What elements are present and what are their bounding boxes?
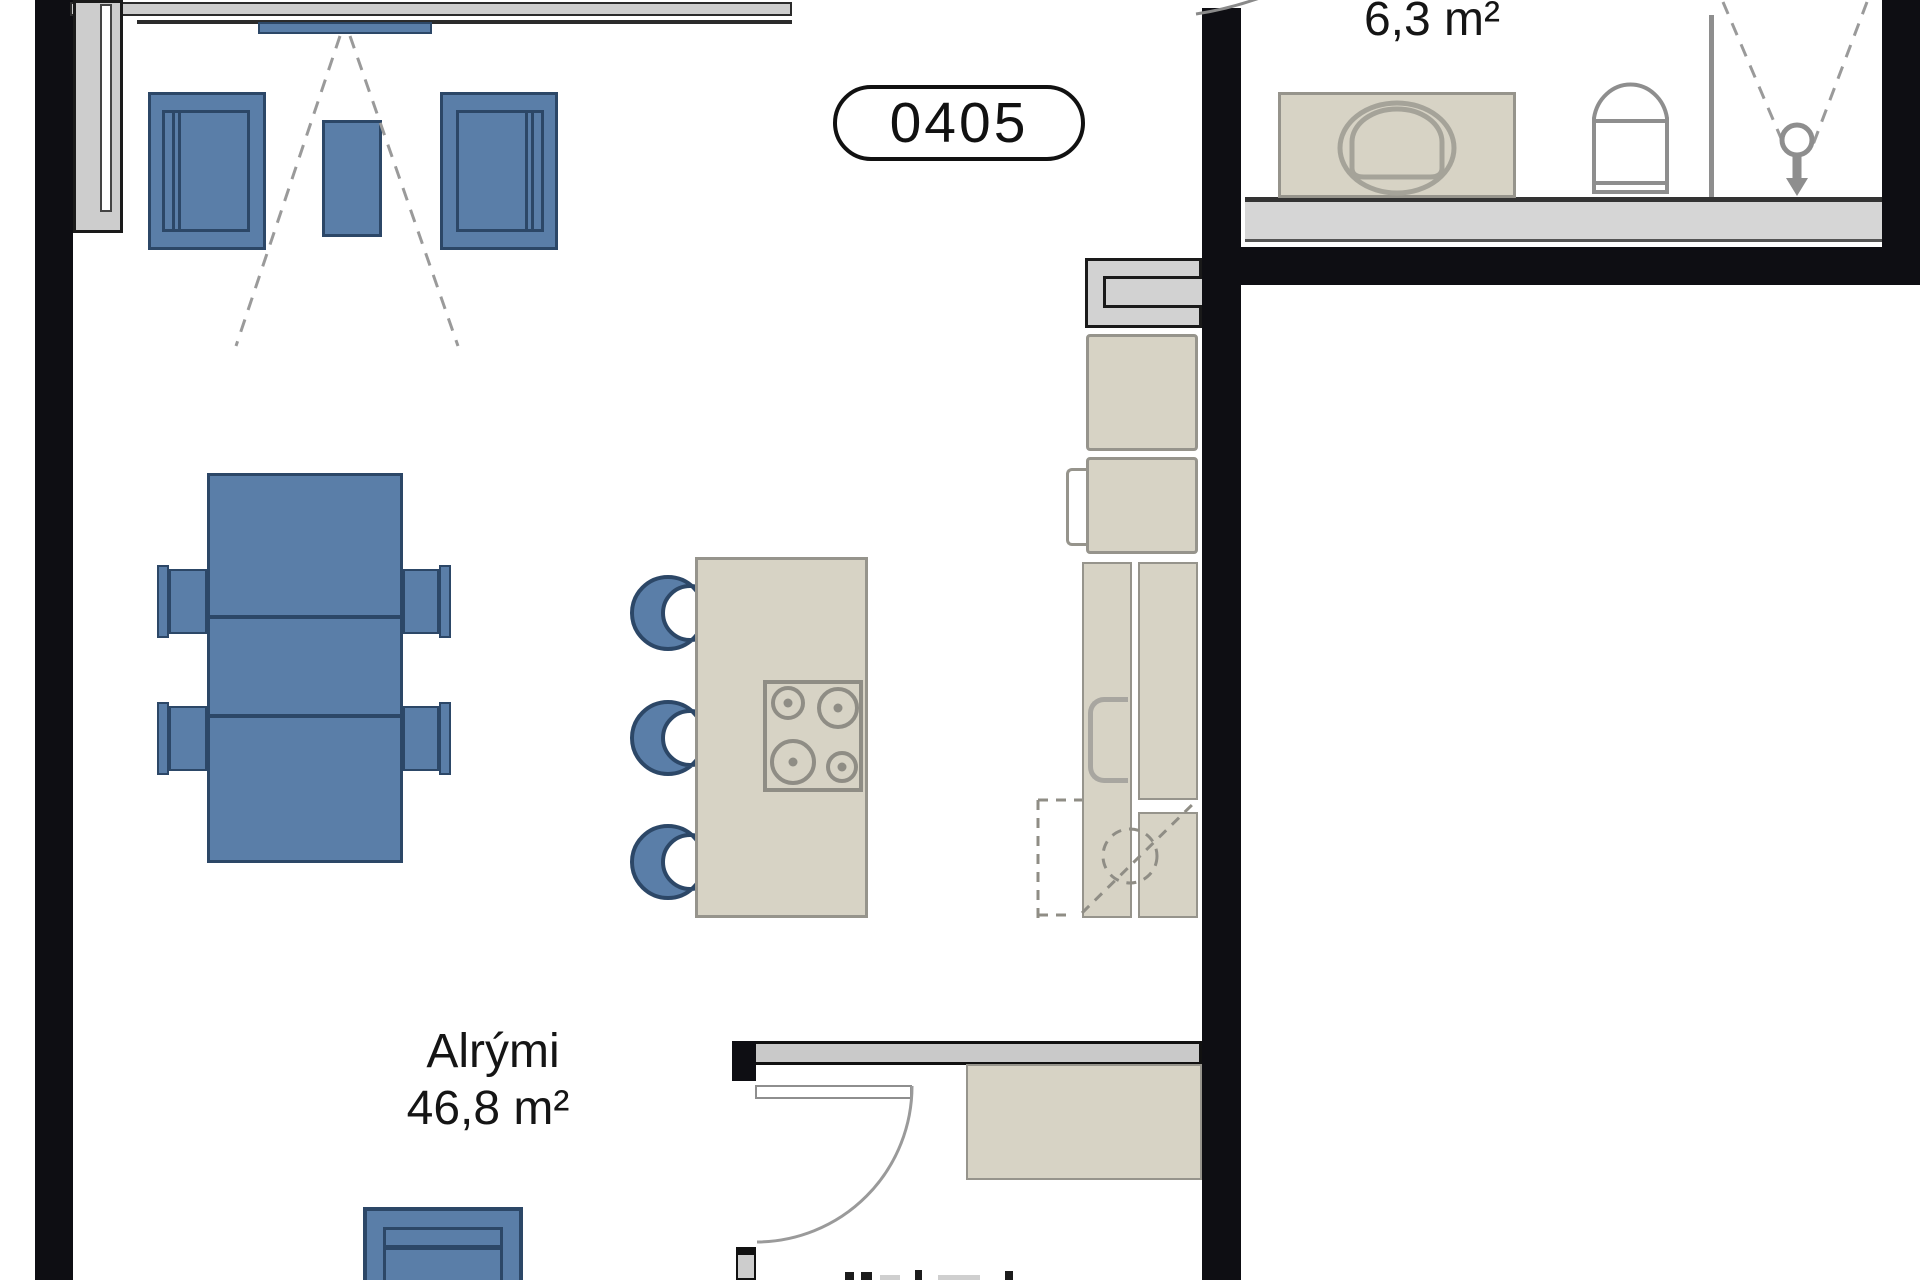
clipped-text-mark bbox=[845, 1272, 854, 1280]
unit-number: 0405 bbox=[890, 90, 1029, 156]
bathroom-door-arc bbox=[1196, 0, 1330, 14]
unit-number-badge: 0405 bbox=[833, 85, 1085, 161]
floor-plan: 0405 6,3 m² Alrými 46,8 m² bbox=[0, 0, 1920, 1280]
symbol-layer bbox=[0, 0, 1920, 1280]
living-room-area-label: 46,8 m² bbox=[407, 1081, 570, 1136]
clipped-text-mark bbox=[1005, 1271, 1013, 1280]
clipped-text-mark bbox=[915, 1270, 922, 1280]
dishwasher-symbol bbox=[1038, 800, 1196, 918]
shower-icon bbox=[1723, 2, 1867, 196]
door-swing-arc bbox=[757, 1086, 912, 1242]
clipped-text-mark bbox=[880, 1275, 900, 1280]
tv-viewing-lines bbox=[236, 36, 458, 346]
living-room-name-label: Alrými bbox=[426, 1024, 559, 1079]
toilet-icon bbox=[1594, 85, 1667, 192]
bathroom-area-label: 6,3 m² bbox=[1364, 0, 1500, 47]
clipped-text-mark bbox=[861, 1272, 872, 1280]
washbasin-icon bbox=[1340, 103, 1454, 193]
clipped-text-mark bbox=[938, 1275, 980, 1280]
cooktop-burners bbox=[772, 688, 857, 783]
